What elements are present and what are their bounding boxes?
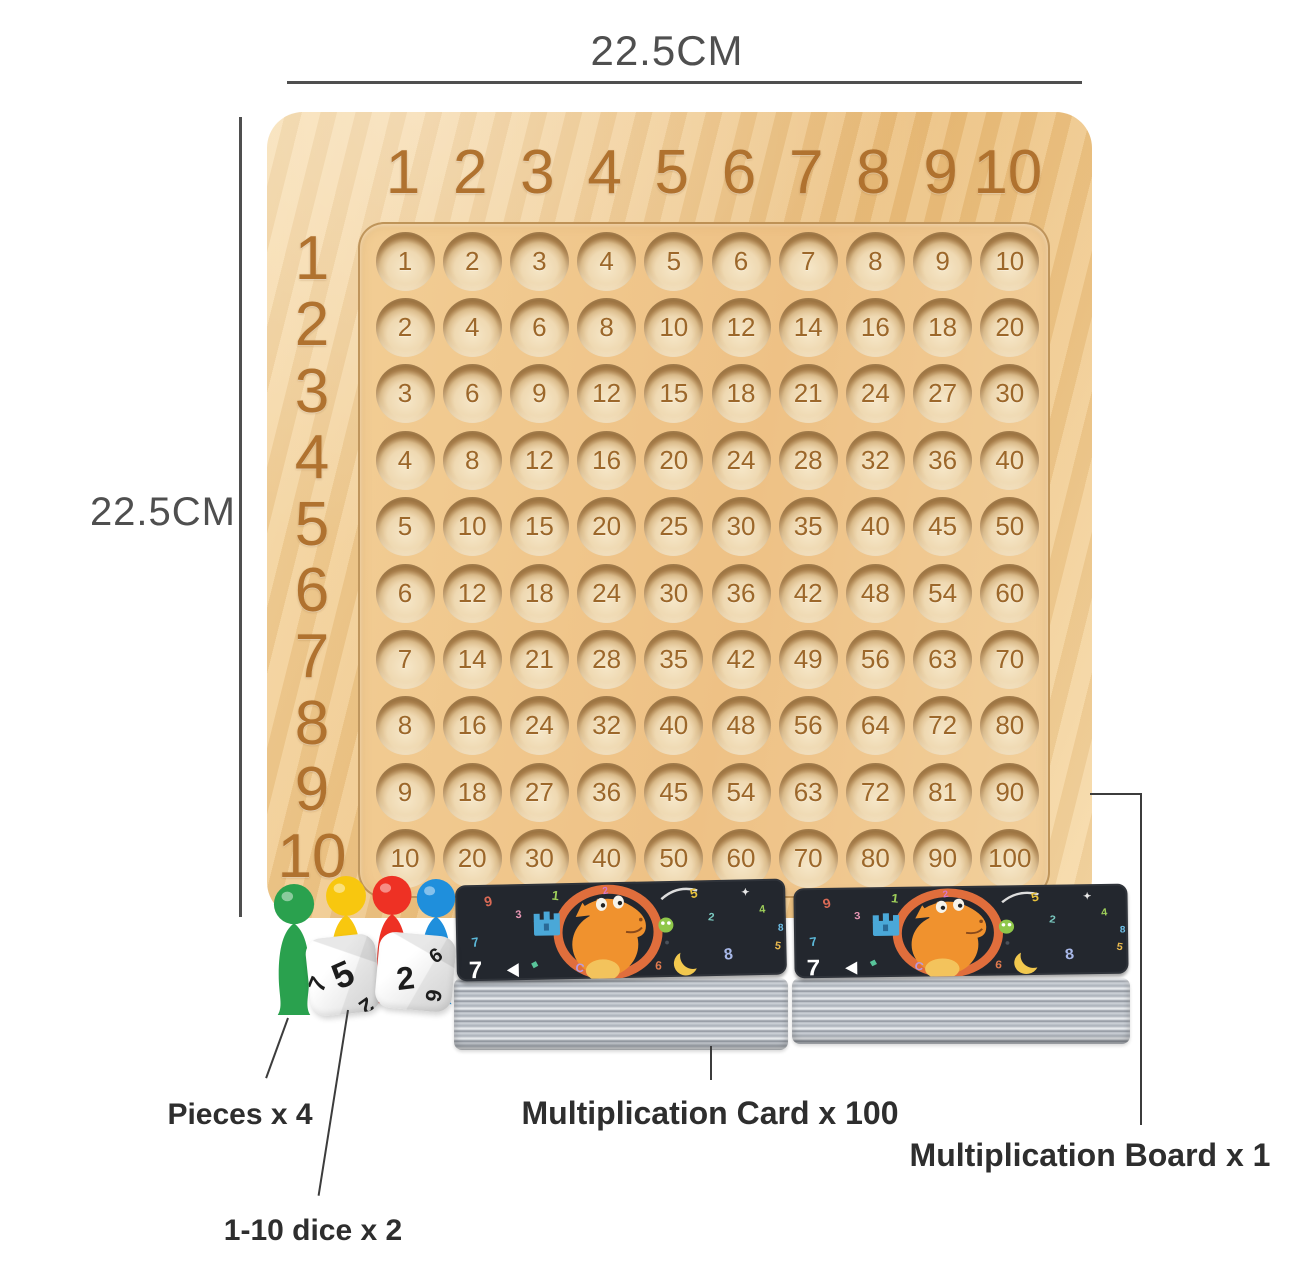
svg-text:7: 7: [470, 934, 480, 950]
grid-cell-6x10: 60: [980, 564, 1039, 623]
svg-text:2: 2: [707, 911, 715, 924]
pieces-callout-line: [265, 1018, 289, 1079]
svg-text:8: 8: [1064, 946, 1075, 963]
grid-cell-10x4: 40: [577, 829, 636, 888]
height-dimension-label: 22.5CM: [40, 490, 236, 535]
grid-cell-7x9: 63: [913, 630, 972, 689]
row-header-8: 8: [295, 693, 329, 755]
grid-cell-9x5: 45: [644, 763, 703, 822]
grid-cell-7x2: 14: [443, 630, 502, 689]
grid-cell-9x7: 63: [779, 763, 838, 822]
row-header-4: 4: [295, 427, 329, 489]
grid-cell-5x1: 5: [376, 497, 435, 556]
grid-cell-8x10: 80: [980, 696, 1039, 755]
board-inner-panel: 1234567891024681012141618203691215182124…: [358, 222, 1050, 898]
grid-cell-9x9: 81: [913, 763, 972, 822]
card-corner-number: 7: [469, 957, 483, 982]
grid-cell-6x6: 36: [712, 564, 771, 623]
grid-cell-1x3: 3: [510, 232, 569, 291]
card-stack-right-edge: [792, 978, 1130, 1044]
grid-cell-8x4: 32: [577, 696, 636, 755]
grid-cell-7x8: 56: [846, 630, 905, 689]
svg-text:4: 4: [1100, 907, 1108, 919]
grid-cell-8x5: 40: [644, 696, 703, 755]
grid-cell-3x5: 15: [644, 364, 703, 423]
grid-cell-8x9: 72: [913, 696, 972, 755]
grid-cell-2x9: 18: [913, 298, 972, 357]
card-stack-right: 9137C52864✦●◆528 7: [790, 886, 1132, 1044]
svg-text:2: 2: [1049, 914, 1057, 926]
grid-cell-6x5: 30: [644, 564, 703, 623]
grid-cell-5x4: 20: [577, 497, 636, 556]
row-header-1: 1: [295, 228, 329, 290]
grid-cell-5x9: 45: [913, 497, 972, 556]
grid-cell-4x10: 40: [980, 431, 1039, 490]
grid-cell-9x8: 72: [846, 763, 905, 822]
grid-cell-6x2: 12: [443, 564, 502, 623]
row-header-5: 5: [295, 494, 329, 556]
grid-cell-3x3: 9: [510, 364, 569, 423]
grid-cell-8x6: 48: [712, 696, 771, 755]
grid-cell-3x2: 6: [443, 364, 502, 423]
grid-cell-4x9: 36: [913, 431, 972, 490]
grid-cell-1x9: 9: [913, 232, 972, 291]
board-label: Multiplication Board x 1: [840, 1138, 1290, 1173]
svg-text:5: 5: [1030, 890, 1041, 905]
grid-cell-2x7: 14: [779, 298, 838, 357]
grid-cell-4x8: 32: [846, 431, 905, 490]
grid-cell-3x7: 21: [779, 364, 838, 423]
grid-cell-9x10: 90: [980, 763, 1039, 822]
grid-cell-4x3: 12: [510, 431, 569, 490]
grid-cell-1x2: 2: [443, 232, 502, 291]
grid-cell-5x6: 30: [712, 497, 771, 556]
card-corner-number: 7: [806, 955, 820, 978]
row-header-6: 6: [295, 560, 329, 622]
grid-cell-5x2: 10: [443, 497, 502, 556]
row-header-2: 2: [295, 294, 329, 356]
grid-cell-7x3: 21: [510, 630, 569, 689]
grid-cell-1x8: 8: [846, 232, 905, 291]
grid-cell-10x7: 70: [779, 829, 838, 888]
svg-text:●: ●: [1005, 938, 1011, 948]
grid-cell-6x3: 18: [510, 564, 569, 623]
svg-text:◆: ◆: [529, 958, 541, 970]
grid-cell-5x3: 15: [510, 497, 569, 556]
product-photo: 22.5CM 22.5CM 12345678910 12345678910 12…: [0, 0, 1290, 1274]
grid-cell-3x4: 12: [577, 364, 636, 423]
grid-cell-3x9: 27: [913, 364, 972, 423]
svg-text:9: 9: [821, 896, 833, 912]
svg-text:3: 3: [854, 910, 861, 922]
grid-cell-7x1: 7: [376, 630, 435, 689]
grid-cell-1x7: 7: [779, 232, 838, 291]
grid-cell-3x10: 30: [980, 364, 1039, 423]
grid-cell-1x5: 5: [644, 232, 703, 291]
svg-text:7: 7: [809, 935, 818, 949]
multiplication-card: 9137C52864✦●◆528 7: [793, 884, 1128, 979]
grid-cell-5x8: 40: [846, 497, 905, 556]
grid-cell-7x10: 70: [980, 630, 1039, 689]
grid-cell-10x8: 80: [846, 829, 905, 888]
multiplication-card: 9137C52864✦●◆528 7: [455, 879, 787, 982]
multiplication-board: 12345678910 12345678910 1234567891024681…: [267, 112, 1092, 918]
grid-cell-8x8: 64: [846, 696, 905, 755]
grid-cell-5x5: 25: [644, 497, 703, 556]
grid-cell-7x6: 42: [712, 630, 771, 689]
svg-text:●: ●: [664, 937, 670, 947]
svg-text:8: 8: [723, 946, 734, 964]
grid-cell-9x1: 9: [376, 763, 435, 822]
grid-cell-7x4: 28: [577, 630, 636, 689]
grid-cell-4x5: 20: [644, 431, 703, 490]
pieces-label: Pieces x 4: [90, 1098, 390, 1131]
grid-cell-4x7: 28: [779, 431, 838, 490]
grid-cell-6x4: 24: [577, 564, 636, 623]
grid-cell-8x7: 56: [779, 696, 838, 755]
grid-cell-7x7: 49: [779, 630, 838, 689]
svg-text:4: 4: [759, 903, 767, 916]
svg-text:✦: ✦: [1083, 891, 1092, 902]
grid-cell-2x10: 20: [980, 298, 1039, 357]
grid-cell-6x8: 48: [846, 564, 905, 623]
grid-cell-6x1: 6: [376, 564, 435, 623]
grid-cell-1x6: 6: [712, 232, 771, 291]
row-header-7: 7: [295, 626, 329, 688]
svg-text:1: 1: [551, 888, 560, 904]
svg-text:◆: ◆: [868, 957, 880, 969]
grid-cell-2x8: 16: [846, 298, 905, 357]
grid-cell-9x6: 54: [712, 763, 771, 822]
board-callout-line-horizontal: [1090, 793, 1142, 795]
svg-text:5: 5: [688, 885, 699, 901]
width-dimension-line: [287, 81, 1082, 84]
grid-cell-3x6: 18: [712, 364, 771, 423]
ten-sided-die-right: 2 9 6: [374, 931, 457, 1013]
grid-cell-1x10: 10: [980, 232, 1039, 291]
grid-cell-2x2: 4: [443, 298, 502, 357]
card-stack-left: 9137C52864✦●◆528 7: [452, 882, 790, 1050]
ten-sided-die-left: 5 7 2: [304, 933, 382, 1018]
grid-cell-4x4: 16: [577, 431, 636, 490]
svg-text:5: 5: [1116, 941, 1124, 953]
svg-text:8: 8: [778, 923, 784, 934]
grid-cell-10x9: 90: [913, 829, 972, 888]
cards-label: Multiplication Card x 100: [460, 1096, 960, 1131]
svg-text:5: 5: [774, 940, 782, 953]
grid-cell-4x1: 4: [376, 431, 435, 490]
grid-cell-8x3: 24: [510, 696, 569, 755]
height-dimension-line: [239, 117, 242, 917]
grid-cell-1x4: 4: [577, 232, 636, 291]
grid-cell-1x1: 1: [376, 232, 435, 291]
svg-text:8: 8: [1120, 925, 1126, 936]
grid-cell-8x1: 8: [376, 696, 435, 755]
grid-cell-5x7: 35: [779, 497, 838, 556]
grid-cell-5x10: 50: [980, 497, 1039, 556]
cards-callout-line: [710, 1046, 712, 1080]
board-callout-line-vertical: [1140, 793, 1142, 1125]
dice-label: 1-10 dice x 2: [113, 1214, 513, 1247]
svg-text:1: 1: [890, 891, 899, 905]
row-header-9: 9: [295, 759, 329, 821]
grid-cell-6x7: 42: [779, 564, 838, 623]
grid-cell-4x2: 8: [443, 431, 502, 490]
card-stack-left-edge: [454, 978, 788, 1050]
grid-cell-4x6: 24: [712, 431, 771, 490]
svg-text:✦: ✦: [741, 887, 750, 898]
multiplication-grid: 1234567891024681012141618203691215182124…: [360, 224, 1048, 896]
grid-cell-8x2: 16: [443, 696, 502, 755]
grid-cell-10x5: 50: [644, 829, 703, 888]
grid-cell-2x4: 8: [577, 298, 636, 357]
grid-cell-2x3: 6: [510, 298, 569, 357]
grid-cell-3x1: 3: [376, 364, 435, 423]
grid-cell-2x5: 10: [644, 298, 703, 357]
grid-cell-9x4: 36: [577, 763, 636, 822]
row-header-3: 3: [295, 361, 329, 423]
grid-cell-9x2: 18: [443, 763, 502, 822]
grid-cell-2x6: 12: [712, 298, 771, 357]
grid-cell-3x8: 24: [846, 364, 905, 423]
grid-cell-10x10: 100: [980, 829, 1039, 888]
grid-cell-6x9: 54: [913, 564, 972, 623]
grid-cell-7x5: 35: [644, 630, 703, 689]
width-dimension-label: 22.5CM: [517, 27, 817, 75]
grid-cell-10x3: 30: [510, 829, 569, 888]
svg-text:3: 3: [515, 909, 522, 922]
grid-cell-9x3: 27: [510, 763, 569, 822]
svg-text:9: 9: [483, 892, 494, 909]
svg-text:6: 6: [995, 958, 1003, 971]
grid-cell-2x1: 2: [376, 298, 435, 357]
svg-text:6: 6: [655, 958, 663, 973]
